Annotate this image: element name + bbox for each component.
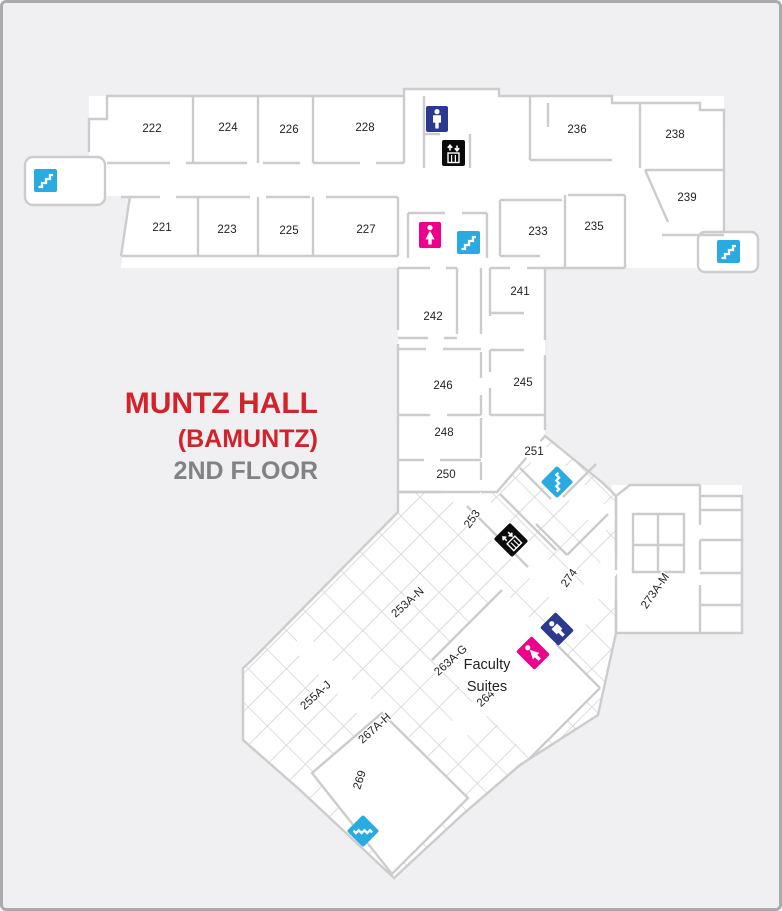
room-label-250: 250 bbox=[436, 469, 455, 481]
building-title: MUNTZ HALL bbox=[125, 387, 318, 420]
elevator-icon-north bbox=[442, 140, 465, 166]
room-label-226: 226 bbox=[279, 124, 298, 136]
womens-restroom-icon-north bbox=[419, 222, 441, 248]
faculty-suites-label-line2: Suites bbox=[467, 679, 507, 695]
room-label-238: 238 bbox=[665, 129, 684, 141]
faculty-suites-label-line1: Faculty bbox=[464, 657, 511, 673]
room-label-235: 235 bbox=[584, 221, 603, 233]
mens-restroom-icon-north bbox=[426, 106, 448, 132]
room-label-225: 225 bbox=[279, 225, 298, 237]
room-label-227: 227 bbox=[356, 224, 375, 236]
room-label-233: 233 bbox=[528, 226, 547, 238]
room-label-222: 222 bbox=[142, 123, 161, 135]
room-label-251: 251 bbox=[524, 446, 543, 458]
room-label-221: 221 bbox=[152, 222, 171, 234]
room-label-239: 239 bbox=[677, 192, 696, 204]
room-label-224: 224 bbox=[218, 122, 238, 134]
building-code: (BAMUNTZ) bbox=[178, 425, 318, 453]
floor-label: 2ND FLOOR bbox=[174, 457, 318, 485]
room-label-241: 241 bbox=[510, 286, 529, 298]
stairs-icon-east bbox=[717, 240, 740, 263]
stairs-icon-central bbox=[457, 231, 480, 254]
room-label-245: 245 bbox=[513, 377, 532, 389]
room-label-242: 242 bbox=[423, 311, 442, 323]
room-label-228: 228 bbox=[355, 122, 374, 134]
stairs-icon-west bbox=[34, 169, 57, 192]
floor-plan-map: 222 224 226 228 236 238 239 221 223 225 … bbox=[3, 3, 779, 908]
title-block: MUNTZ HALL (BAMUNTZ) 2ND FLOOR bbox=[125, 387, 318, 485]
floor-plan-page: 222 224 226 228 236 238 239 221 223 225 … bbox=[0, 0, 782, 911]
room-label-248: 248 bbox=[434, 427, 453, 439]
room-label-246: 246 bbox=[433, 380, 452, 392]
room-label-236: 236 bbox=[567, 124, 586, 136]
room-label-223: 223 bbox=[217, 224, 236, 236]
